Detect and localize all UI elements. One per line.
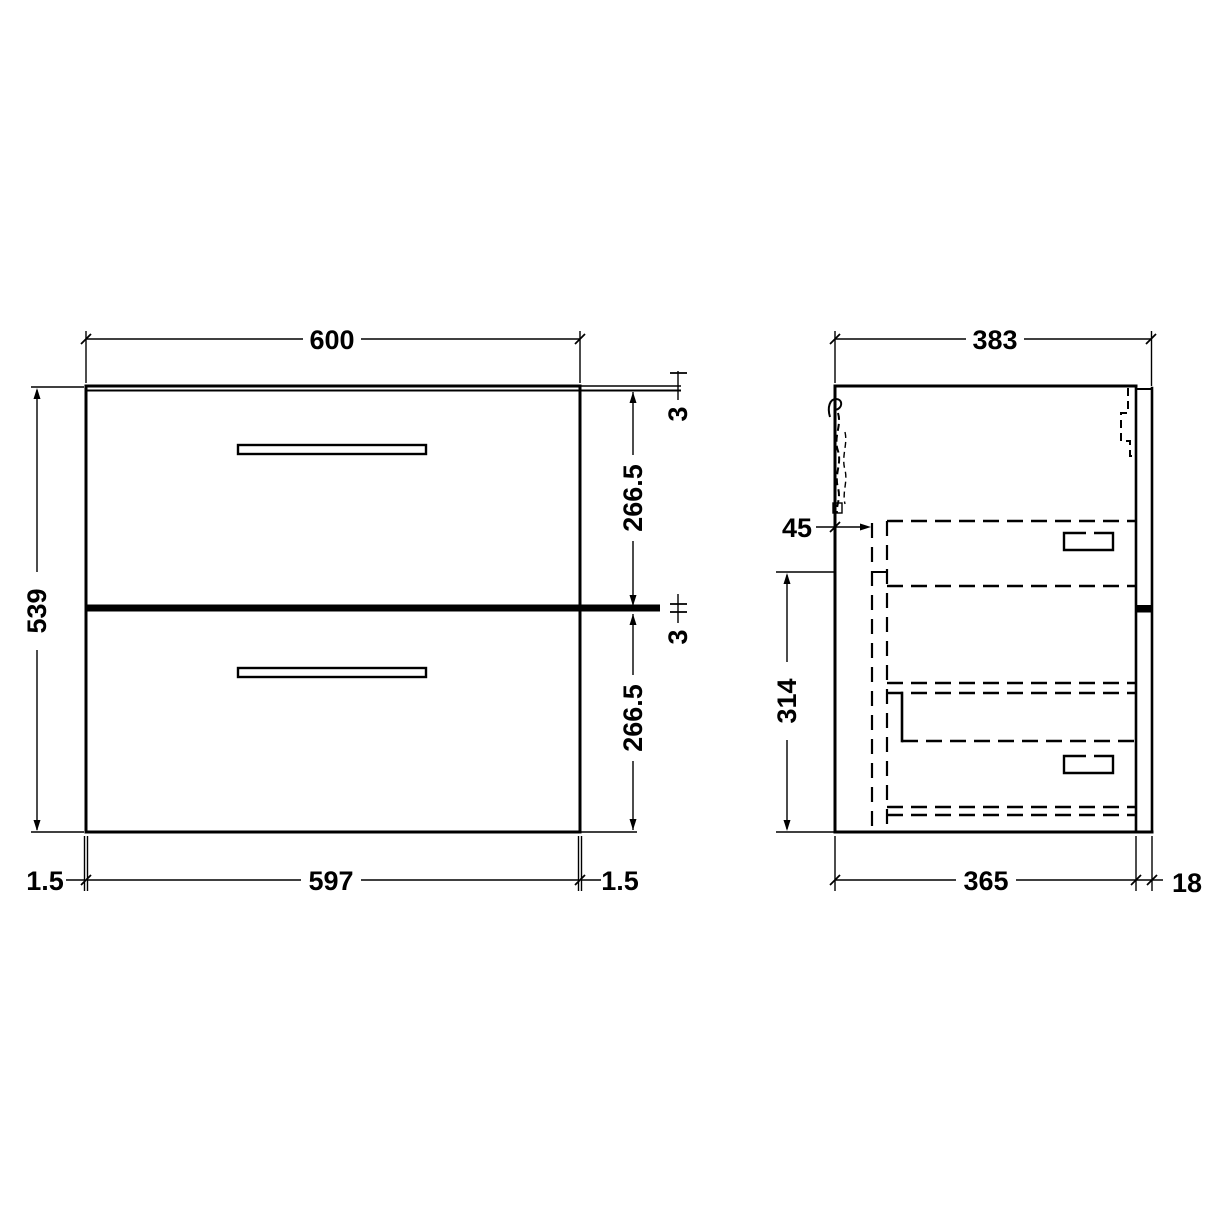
side-upper-handle-fixing <box>1064 533 1113 550</box>
dim-label-side-depth-top: 383 <box>972 325 1017 355</box>
front-upper-drawer-handle <box>238 445 426 454</box>
front-lower-drawer-handle <box>238 668 426 677</box>
vanity-dimension-drawing: 600 539 3 266.5 <box>0 0 1224 1224</box>
technical-drawing-canvas: 600 539 3 266.5 <box>0 0 1224 1224</box>
side-drawer-front-joint <box>1135 605 1153 613</box>
dim-label-front-divider-gap: 3 <box>663 629 693 644</box>
dim-label-side-carcass-depth: 365 <box>963 866 1008 896</box>
side-lower-handle-fixing <box>1064 756 1113 773</box>
dim-label-side-back-clearance: 45 <box>782 513 812 543</box>
drawing-background <box>0 0 1224 1224</box>
dim-label-front-gap-left: 1.5 <box>26 866 64 896</box>
dim-label-front-top-panel: 3 <box>663 406 693 421</box>
dim-label-front-lower-drawer: 266.5 <box>618 684 648 752</box>
dim-label-front-gap-right: 1.5 <box>601 866 639 896</box>
dim-label-front-height: 539 <box>22 588 52 633</box>
dim-label-front-width-top: 600 <box>309 325 354 355</box>
dim-label-front-width-bottom: 597 <box>308 866 353 896</box>
dim-label-front-upper-drawer: 266.5 <box>618 464 648 532</box>
dim-label-side-lower-height: 314 <box>772 678 802 723</box>
dim-label-side-front-panel: 18 <box>1172 868 1202 898</box>
